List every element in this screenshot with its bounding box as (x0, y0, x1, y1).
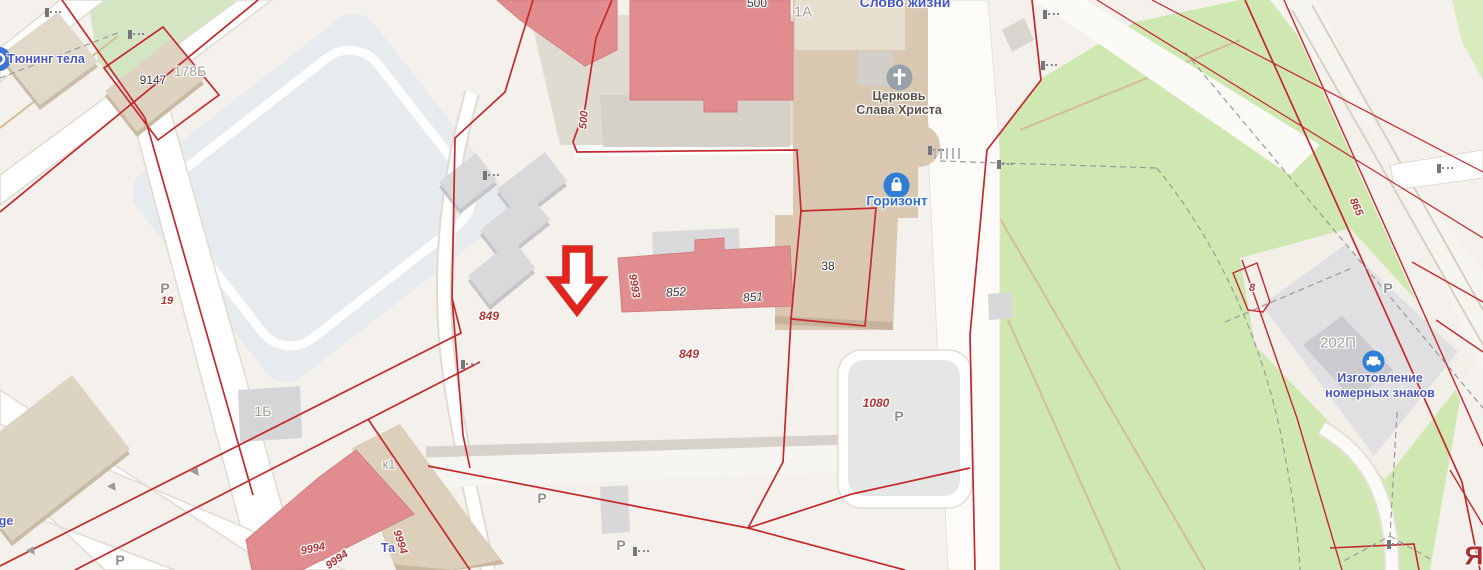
annotation-arrow-icon (545, 240, 615, 322)
street-label-ya: Я (1465, 541, 1483, 570)
poi-label-tuning-tela[interactable]: Тюнинг тела (7, 52, 85, 66)
poi-label-plates-line1[interactable]: Изготовление (1337, 371, 1423, 385)
barrier-icon (1437, 164, 1441, 173)
parcel-label-849-west: 849 (479, 309, 499, 323)
poi-label-gorizont[interactable]: Горизонт (866, 194, 927, 209)
parking-letter: Р (115, 552, 124, 568)
barrier-icon (461, 360, 465, 369)
poi-label-ge-partial[interactable]: ge (0, 514, 13, 528)
map-canvas (0, 0, 1483, 570)
barrier-icon (928, 146, 932, 155)
poi-label-church-line1[interactable]: Церковь (873, 89, 926, 103)
poi-label-slovo-zhizni[interactable]: Слово жизни (860, 0, 951, 10)
building-label-500: 500 (747, 0, 767, 10)
building-label-1b: 1Б (255, 403, 272, 419)
parcel-label-500: 500 (577, 110, 591, 129)
building-label-1a: 1А (794, 4, 812, 21)
building-label-202p: 202П (1320, 335, 1356, 352)
building-label-178b: 178Б (174, 63, 207, 79)
poi-label-ta-partial[interactable]: Та (381, 541, 395, 555)
parking-letter: Р (616, 537, 625, 553)
parcel-label-8: 8 (1249, 282, 1255, 294)
poi-label-plates-line2[interactable]: номерных знаков (1325, 386, 1435, 400)
barrier-icon (128, 30, 132, 39)
parking-letter: Р (894, 408, 903, 424)
building-label-851: 851 (743, 289, 764, 304)
barrier-icon (45, 8, 49, 17)
parcel-label-1080: 1080 (863, 396, 890, 410)
building-label-9147: 9147 (140, 73, 167, 87)
map-viewport[interactable]: Тюнинг тела Слово жизни Церковь Слава Хр… (0, 0, 1483, 570)
parking-letter: Р (1383, 280, 1392, 296)
parcel-label-19: 19 (161, 295, 173, 307)
barrier-icon (1041, 61, 1045, 70)
poi-label-church-line2[interactable]: Слава Христа (856, 103, 942, 117)
building-label-38: 38 (821, 259, 834, 273)
barrier-icon (1043, 10, 1047, 19)
building-label-k1: к1 (383, 457, 396, 472)
barrier-icon (633, 547, 637, 556)
crosswalk-marking (934, 148, 960, 159)
parking-letter: Р (537, 490, 546, 506)
parcel-label-849-east: 849 (679, 347, 699, 361)
parking-letter: Р (160, 280, 169, 296)
barrier-icon (997, 160, 1001, 169)
building-label-852: 852 (666, 284, 687, 299)
barrier-icon (483, 171, 487, 180)
barrier-icon (1387, 540, 1391, 549)
